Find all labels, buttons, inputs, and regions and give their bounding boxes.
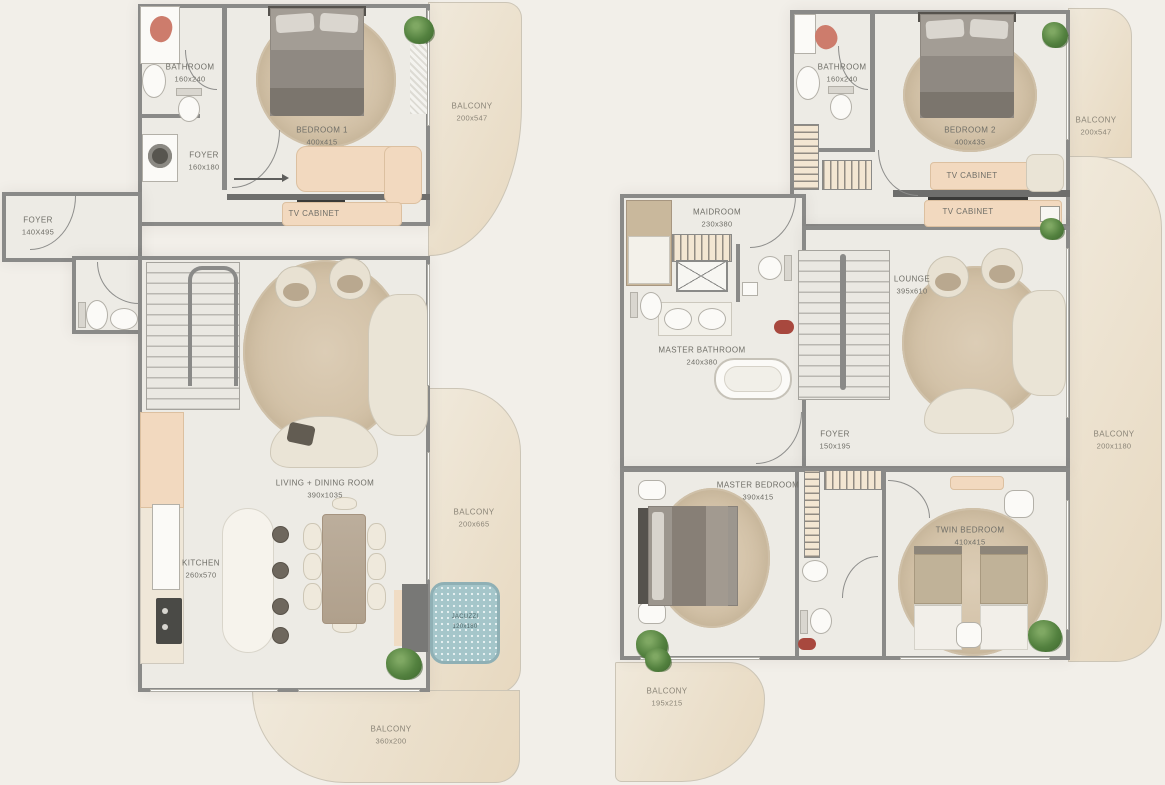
room-name: MASTER BEDROOM <box>717 479 800 491</box>
bathtub-inner <box>724 366 782 392</box>
room-label-maidroom: MAIDROOM 230x380 <box>693 206 741 229</box>
bedside-bench <box>638 480 666 500</box>
plan-right: BATHROOM 160x240 BEDROOM 2 400x435 TV CA… <box>0 0 1165 785</box>
room-name: BALCONY <box>453 506 494 518</box>
room-dims: 200x547 <box>451 112 492 123</box>
toilet-tank <box>828 86 854 94</box>
laundry-box <box>794 14 816 54</box>
window <box>298 689 420 692</box>
room-label-foyer-left: FOYER 140X495 <box>22 214 54 237</box>
room-dims: 195x215 <box>646 697 687 708</box>
nightstand <box>956 622 982 648</box>
room-dims: 160x240 <box>818 73 867 84</box>
balcony-right <box>1068 156 1162 662</box>
room-name: BALCONY <box>1093 428 1134 440</box>
room-name: TWIN BEDROOM <box>936 524 1005 536</box>
window <box>1066 500 1069 630</box>
room-name: BATHROOM <box>818 61 867 73</box>
room-name: TV CABINET <box>942 206 993 218</box>
plant-icon <box>404 16 434 44</box>
shower-mixer-icon <box>798 638 816 650</box>
jacuzzi-name: JACUZZI <box>452 613 479 623</box>
room-name: TV CABINET <box>288 208 339 220</box>
room-name: FOYER <box>189 149 220 161</box>
pillow <box>925 19 964 40</box>
balcony-label-top: BALCONY 200x547 <box>451 100 492 123</box>
closet-hatch <box>824 470 882 490</box>
room-label-bathroom2: BATHROOM 160x240 <box>818 61 867 84</box>
closet-hatch <box>804 470 820 558</box>
room-dims: 200x665 <box>453 518 494 529</box>
room-label-kitchen: KITCHEN 260x570 <box>182 557 220 580</box>
sink-icon <box>796 66 820 100</box>
sink-icon <box>664 308 692 330</box>
room-dims: 260x570 <box>182 569 220 580</box>
pillow <box>969 19 1008 40</box>
room-dims: 200x1180 <box>1093 440 1134 451</box>
room-label-foyer-small: FOYER 160x180 <box>189 149 220 172</box>
shower-mixer-icon <box>774 320 794 334</box>
sink-icon <box>802 560 828 582</box>
jacuzzi-dims: 120x180 <box>452 623 477 633</box>
room-label-lounge: LOUNGE 395x610 <box>894 273 930 296</box>
window <box>1066 248 1069 418</box>
bed-twin-1 <box>914 554 962 604</box>
plant-icon <box>1040 218 1064 240</box>
room-label-tv-cabinet-1: TV CABINET <box>946 170 997 182</box>
room-dims: 395x610 <box>894 285 930 296</box>
room-name: BALCONY <box>451 100 492 112</box>
room-label-foyer: FOYER 150x195 <box>820 428 851 451</box>
room-label-bedroom1: BEDROOM 1 400x415 <box>296 124 348 147</box>
toilet-tank <box>630 292 638 318</box>
bed-twin-2-sheet <box>980 604 1028 650</box>
room-label-tv-cabinet-2: TV CABINET <box>942 206 993 218</box>
room-name: LIVING + DINING ROOM <box>276 477 374 489</box>
room-dims: 410x415 <box>936 536 1005 547</box>
toilet-icon <box>830 94 852 120</box>
window <box>150 689 278 692</box>
armchair <box>981 248 1023 290</box>
sink-icon <box>698 308 726 330</box>
room-label-bathroom: BATHROOM 160x240 <box>166 61 215 84</box>
toilet-tank <box>784 255 792 281</box>
balcony-label-right: BALCONY 200x1180 <box>1093 428 1134 451</box>
bed-maid-sheet <box>628 236 670 284</box>
balcony-label-bottom: BALCONY 360x200 <box>370 723 411 746</box>
room-name: FOYER <box>22 214 54 226</box>
armchair <box>927 256 969 298</box>
floor-plans-canvas: JACUZZI 120x180 BATHROOM 160x240 BEDROOM… <box>0 0 1165 785</box>
room-label-living-dining: LIVING + DINING ROOM 390x1035 <box>276 477 374 500</box>
room-name: BALCONY <box>646 685 687 697</box>
sink-icon <box>742 282 758 296</box>
room-label-twin-bedroom: TWIN BEDROOM 410x415 <box>936 524 1005 547</box>
sofa-corner <box>1026 154 1064 192</box>
elevator-icon <box>676 260 728 292</box>
room-label-tv-cabinet: TV CABINET <box>288 208 339 220</box>
room-name: MASTER BATHROOM <box>658 344 745 356</box>
room-label-master-bathroom: MASTER BATHROOM 240x380 <box>658 344 745 367</box>
room-dims: 360x200 <box>370 735 411 746</box>
room-name: BALCONY <box>1075 114 1116 126</box>
sofa-lounge-right <box>1012 290 1066 396</box>
window <box>427 264 430 386</box>
room-dims: 400x415 <box>296 136 348 147</box>
jacuzzi: JACUZZI 120x180 <box>430 582 500 664</box>
wardrobe-hatch <box>793 124 819 190</box>
bed-blanket-fold <box>706 506 728 606</box>
room-dims: 200x547 <box>1075 126 1116 137</box>
room-label-bedroom2: BEDROOM 2 400x435 <box>944 124 996 147</box>
stair-rail <box>840 254 846 390</box>
room-name: KITCHEN <box>182 557 220 569</box>
toilet-icon <box>758 256 782 280</box>
room-dims: 390x1035 <box>276 489 374 500</box>
pouf <box>1004 490 1034 518</box>
room-name: FOYER <box>820 428 851 440</box>
room-dims: 230x380 <box>693 218 741 229</box>
room-name: LOUNGE <box>894 273 930 285</box>
balcony-label-top: BALCONY 200x547 <box>1075 114 1116 137</box>
pillow <box>652 512 664 600</box>
balcony-label-bottom: BALCONY 195x215 <box>646 685 687 708</box>
bench <box>950 476 1004 490</box>
room-dims: 400x435 <box>944 136 996 147</box>
window <box>1066 36 1069 140</box>
room-name: TV CABINET <box>946 170 997 182</box>
wall-wc <box>736 244 740 302</box>
room-name: BATHROOM <box>166 61 215 73</box>
window <box>427 452 430 580</box>
room-label-master-bedroom: MASTER BEDROOM 390x415 <box>717 479 800 502</box>
balcony-label-right: BALCONY 200x665 <box>453 506 494 529</box>
stair-rail <box>188 266 238 386</box>
room-dims: 390x415 <box>717 491 800 502</box>
bed-blanket <box>672 506 706 606</box>
room-name: MAIDROOM <box>693 206 741 218</box>
toilet-tank <box>800 610 808 634</box>
toilet-icon <box>640 292 662 320</box>
wall-bathroom2-right <box>870 10 875 150</box>
plant-icon <box>386 648 422 680</box>
room-dims: 160x180 <box>189 161 220 172</box>
room-dims: 150x195 <box>820 440 851 451</box>
wardrobe-hatch <box>672 234 732 262</box>
plant-icon <box>645 648 671 672</box>
balcony-bottom-left <box>615 662 765 782</box>
bed-twin-1-sheet <box>914 604 962 650</box>
toilet-icon <box>810 608 832 634</box>
bed-twin-2 <box>980 554 1028 604</box>
window <box>900 657 1050 660</box>
plant-icon <box>1042 22 1068 48</box>
plant-icon <box>1028 620 1062 652</box>
room-name: BEDROOM 2 <box>944 124 996 136</box>
wall-twin-left <box>882 470 886 658</box>
bed-headboard <box>638 508 648 604</box>
room-dims: 240x380 <box>658 356 745 367</box>
room-dims: 160x240 <box>166 73 215 84</box>
room-name: BEDROOM 1 <box>296 124 348 136</box>
room-name: BALCONY <box>370 723 411 735</box>
room-dims: 140X495 <box>22 226 54 237</box>
wardrobe-hatch <box>822 160 872 190</box>
bed-blanket-fold <box>920 92 1014 118</box>
